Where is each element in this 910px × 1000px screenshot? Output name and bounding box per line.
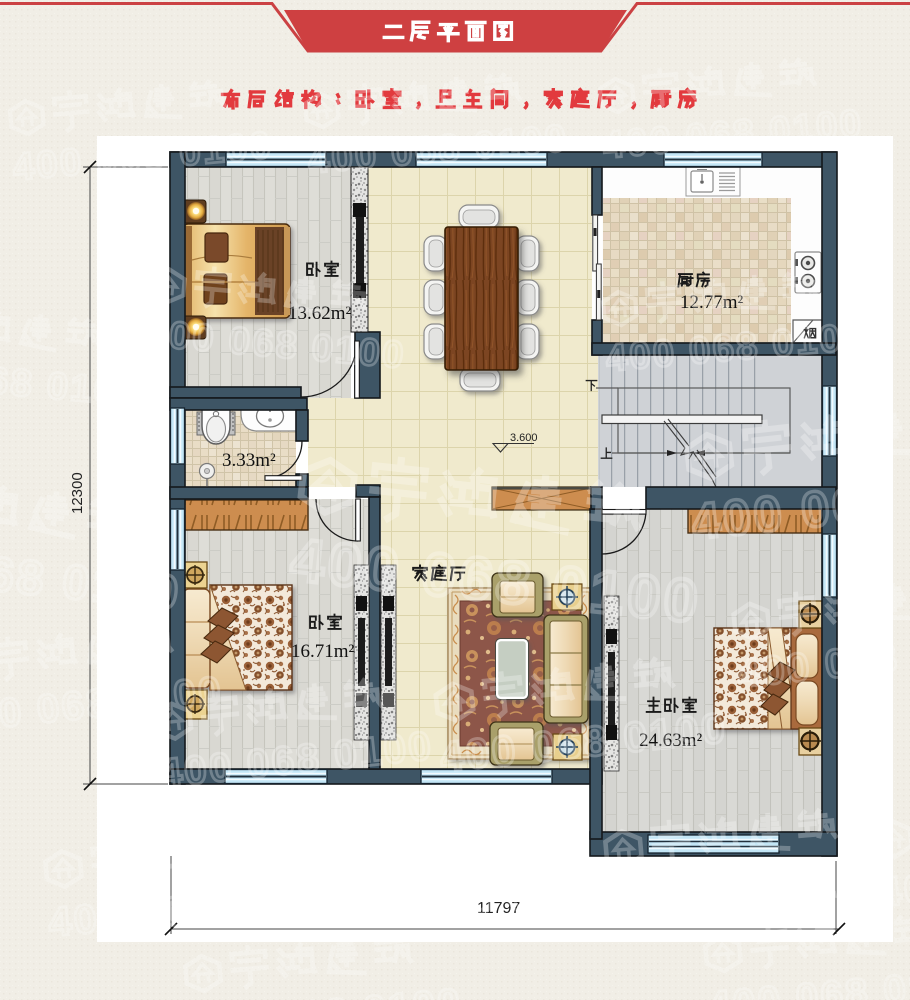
svg-text:3.600: 3.600 [510, 432, 538, 444]
svg-text:16.71m²: 16.71m² [291, 641, 355, 662]
svg-text:3.33m²: 3.33m² [222, 450, 276, 471]
svg-text:12300: 12300 [69, 472, 86, 514]
